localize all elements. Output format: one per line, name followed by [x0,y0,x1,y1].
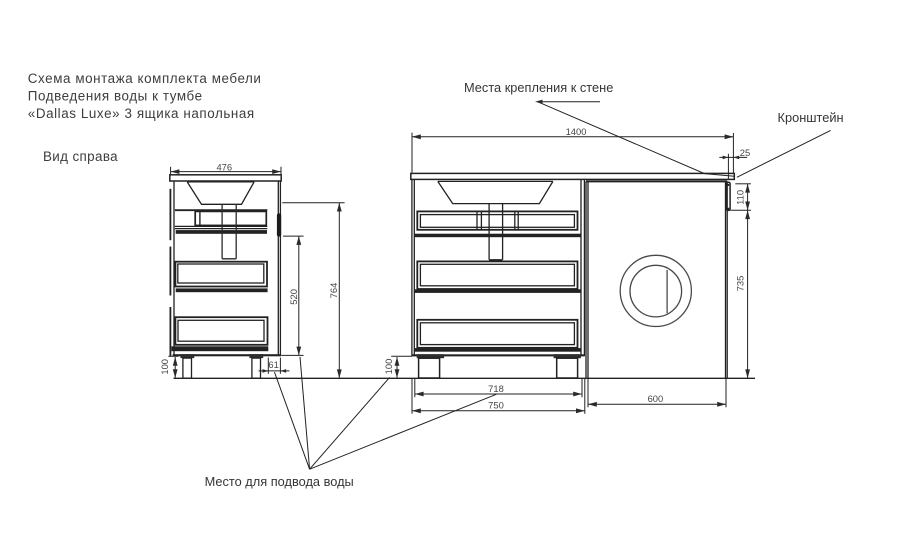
svg-text:750: 750 [488,399,504,410]
svg-text:100: 100 [159,359,170,375]
svg-text:110: 110 [734,190,745,205]
svg-text:718: 718 [488,383,504,394]
svg-text:25: 25 [740,147,750,158]
svg-text:476: 476 [216,161,232,172]
svg-text:600: 600 [648,393,664,404]
svg-text:Подведения воды к тумбе: Подведения воды к тумбе [28,88,203,103]
svg-text:Схема монтажа комплекта мебели: Схема монтажа комплекта мебели [28,71,262,86]
svg-text:1400: 1400 [566,126,587,137]
svg-text:Места крепления к стене: Места крепления к стене [464,80,613,95]
svg-text:735: 735 [734,276,745,292]
svg-text:«Dallas Luxe» 3 ящика напольна: «Dallas Luxe» 3 ящика напольная [28,106,255,121]
svg-text:520: 520 [288,289,299,305]
svg-text:61: 61 [268,359,278,370]
svg-text:Место для подвода воды: Место для подвода воды [205,474,354,489]
svg-text:764: 764 [328,283,339,299]
svg-text:Вид справа: Вид справа [43,149,118,164]
svg-text:Кронштейн: Кронштейн [778,110,844,125]
svg-text:100: 100 [383,359,394,375]
